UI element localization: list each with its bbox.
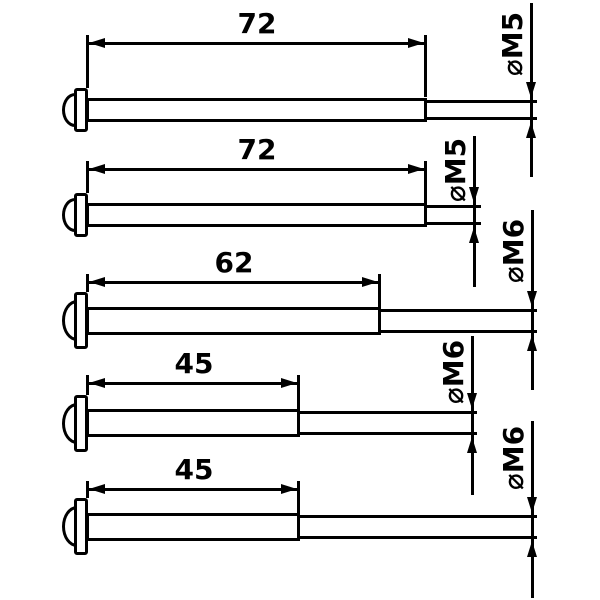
length-dim-line (88, 488, 300, 491)
length-dim-arrow-left (89, 378, 105, 388)
length-dim-label: 72 (238, 10, 277, 38)
length-dim-arrow-left (89, 164, 105, 174)
screw-shank (86, 513, 300, 541)
length-dim-arrow-left (89, 484, 105, 494)
diameter-dim-arrow-bottom (467, 437, 477, 453)
diameter-dim-label: ⌀M5 (499, 12, 527, 76)
length-dim-arrow-right (362, 277, 378, 287)
length-dim-line (88, 42, 427, 45)
diameter-dim-line (473, 136, 476, 287)
length-dim-line (88, 382, 300, 385)
diameter-dim-arrow-top (527, 291, 537, 307)
diameter-dim-arrow-bottom (469, 227, 479, 243)
length-dim-line (88, 281, 381, 284)
diameter-dim-line (471, 336, 474, 495)
screw-shank (86, 409, 300, 437)
diameter-dim-arrow-bottom (527, 541, 537, 557)
screw-shank (86, 98, 427, 122)
screw-thread (300, 411, 477, 435)
screw-thread (381, 309, 537, 333)
length-dim-ext-right (297, 481, 300, 513)
length-dim-arrow-right (281, 484, 297, 494)
diameter-dim-arrow-top (527, 497, 537, 513)
length-dim-arrow-left (89, 38, 105, 48)
screw-shank (86, 307, 381, 335)
length-dim-label: 72 (238, 136, 277, 164)
length-dim-line (88, 168, 427, 171)
diameter-dim-arrow-bottom (526, 122, 536, 138)
length-dim-ext-right (297, 375, 300, 409)
diameter-dim-label: ⌀M6 (500, 426, 528, 490)
length-dim-arrow-right (408, 164, 424, 174)
screw-shank (86, 203, 427, 227)
diameter-dim-arrow-top (526, 82, 536, 98)
length-dim-label: 45 (175, 350, 214, 378)
diameter-dim-label: ⌀M5 (442, 138, 470, 202)
screw-thread (300, 515, 537, 539)
screw-thread (427, 100, 537, 120)
length-dim-arrow-right (281, 378, 297, 388)
screw-dimension-drawing: 72 ⌀M5 72 ⌀M5 62 (0, 0, 600, 600)
length-dim-label: 45 (175, 456, 214, 484)
diameter-dim-arrow-bottom (527, 335, 537, 351)
length-dim-label: 62 (215, 249, 254, 277)
length-dim-arrow-right (408, 38, 424, 48)
diameter-dim-label: ⌀M6 (500, 219, 528, 283)
length-dim-ext-right (378, 274, 381, 307)
diameter-dim-label: ⌀M6 (440, 340, 468, 404)
length-dim-arrow-left (89, 277, 105, 287)
